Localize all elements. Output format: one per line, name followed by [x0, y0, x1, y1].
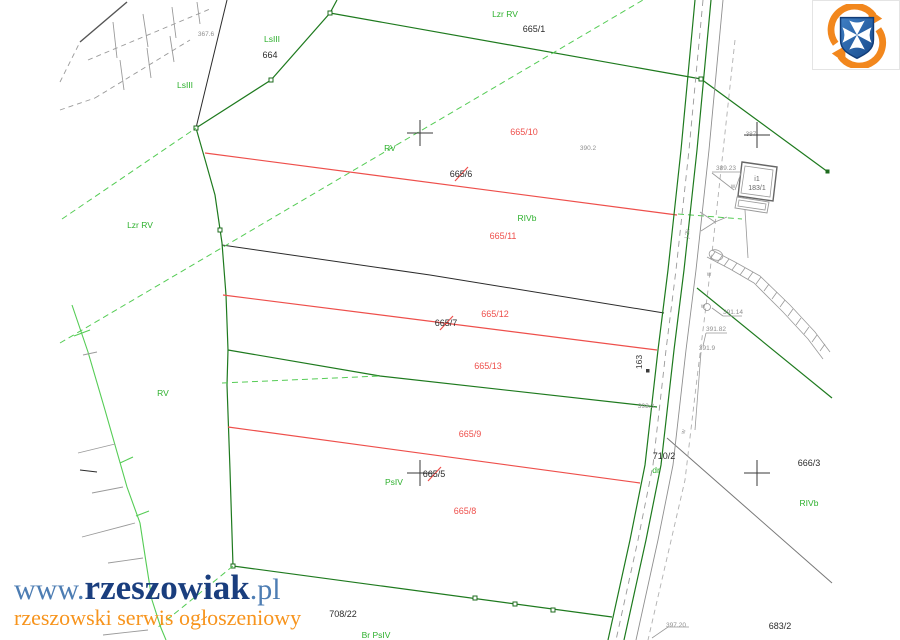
- landuse-label: Lzr RV: [127, 220, 153, 230]
- spot-elevation: 391.9: [699, 345, 716, 352]
- spot-elevation: 397.20: [666, 622, 686, 629]
- spot-elevation: 390.2: [580, 145, 597, 152]
- fence-segment: [745, 210, 748, 258]
- cancelled-parcel-number: 665/7: [435, 318, 458, 328]
- building-parcel-number: 183/1: [748, 185, 766, 192]
- parcel-number: 665/1: [523, 24, 546, 34]
- rzeszow-emblem-icon: [826, 4, 888, 68]
- landuse-label: RV: [384, 143, 396, 153]
- new-parcel-number: 665/8: [454, 506, 477, 516]
- landuse-label: LsIII: [264, 34, 280, 44]
- spot-elevation: 387: [746, 131, 757, 138]
- cancelled-parcel-number: 665/5: [423, 469, 446, 479]
- spot-elevation: 389.23: [716, 165, 736, 172]
- boundary-west: [196, 128, 233, 566]
- boundary-664-north: [196, 0, 337, 128]
- site-watermark: www.rzeszowiak.pl rzeszowski serwis ogło…: [14, 570, 301, 629]
- parcel-number: 708/22: [329, 609, 357, 619]
- red-line-1: [205, 153, 677, 215]
- water-mark: w: [680, 428, 687, 435]
- water-mark: w: [706, 272, 712, 278]
- boundary-664-lsiii: [196, 0, 227, 128]
- use-class-boundaries-dashed: [60, 0, 742, 628]
- landuse-label: Lzr RV: [492, 9, 518, 19]
- cancelled-parcel-number: 665/6: [450, 169, 473, 179]
- boundary-666-3: [697, 288, 832, 398]
- parcel-number: 710/2: [653, 451, 676, 461]
- landuse-label: dr: [652, 465, 660, 475]
- water-mark: w: [700, 304, 706, 310]
- spot-elevation: 393.3: [638, 403, 655, 410]
- new-parcel-number: 665/11: [490, 231, 517, 241]
- cadastral-map: Lzr RV LsIII LsIII Lzr RV RV RV RIVb RIV…: [0, 0, 900, 640]
- pipe-mark: j.2k: [684, 228, 692, 240]
- pole-stay: [700, 212, 727, 231]
- road-edge-green-left: [608, 0, 695, 640]
- landuse-label: RIVb: [800, 498, 819, 508]
- site-name: rzeszowiak: [85, 568, 250, 607]
- spot-elevation: 391.14: [723, 309, 743, 316]
- new-parcel-number: 665/13: [474, 361, 502, 371]
- existing-boundaries-black: [80, 0, 664, 472]
- spot-elevation: 391.82: [706, 326, 726, 333]
- road-right-dashed: [648, 40, 735, 640]
- map-labels: Lzr RV LsIII LsIII Lzr RV RV RV RIVb RIV…: [127, 9, 820, 640]
- emblem-card: [812, 0, 900, 70]
- dashed-short-mid: [222, 376, 380, 383]
- water-mark: w: [730, 184, 736, 190]
- new-parcel-number: 665/12: [481, 309, 509, 319]
- utility-details-right: [652, 172, 748, 638]
- road-corridor: [608, 0, 735, 640]
- parcel-number: 666/3: [798, 458, 821, 468]
- landuse-label: RV: [157, 388, 169, 398]
- landuse-label: PsIV: [385, 477, 403, 487]
- parcel-number: 683/2: [769, 621, 792, 631]
- site-url-prefix: www.: [14, 573, 85, 606]
- leader-389-23: [712, 172, 741, 190]
- road-axis-number: 163: [634, 355, 644, 369]
- new-parcel-number: 665/10: [510, 127, 538, 137]
- road-edge-green-right: [624, 0, 711, 640]
- topleft-survey-sketch: [60, 2, 210, 110]
- landuse-label: RIVb: [518, 213, 537, 223]
- shed-inner: [738, 200, 766, 210]
- building-storeys-code: i1: [754, 176, 760, 183]
- embankment-hatch: [707, 248, 830, 359]
- landuse-label: Br PsIV: [362, 630, 391, 640]
- cadastral-map-screenshot: Lzr RV LsIII LsIII Lzr RV RV RV RIVb RIV…: [0, 0, 900, 640]
- road-shoulder-gray: [636, 0, 723, 640]
- boundary-665-13-665-9: [228, 350, 657, 407]
- site-url: www.rzeszowiak.pl: [14, 570, 301, 606]
- site-tagline: rzeszowski serwis ogłoszeniowy: [14, 607, 301, 629]
- landuse-label: LsIII: [177, 80, 193, 90]
- parcel-number: 664: [262, 50, 277, 60]
- dashed-diagonal-a: [62, 128, 196, 219]
- road-axis-marker: [646, 369, 650, 373]
- short-tick: [80, 470, 97, 472]
- spot-elevation: 367.6: [198, 31, 215, 38]
- new-parcel-number: 665/9: [459, 429, 482, 439]
- site-url-suffix: .pl: [250, 573, 281, 606]
